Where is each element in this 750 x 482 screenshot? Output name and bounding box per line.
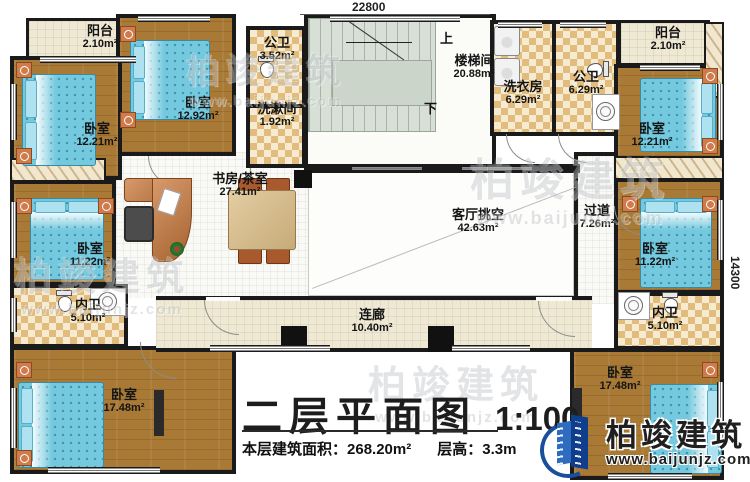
- window: [10, 298, 17, 332]
- nightstand: [120, 112, 136, 128]
- label-living-void: 客厅挑空42.63m²: [452, 208, 504, 234]
- desk-chair: [124, 206, 154, 242]
- window: [10, 84, 17, 140]
- label-bedroom-top-mid: 卧室12.92m²: [178, 96, 219, 122]
- window: [608, 473, 692, 480]
- sink-basin: [596, 102, 615, 121]
- window: [10, 202, 17, 258]
- tea-table: [228, 190, 296, 250]
- nightstand: [702, 362, 718, 378]
- stair-down-label: 下: [424, 98, 437, 117]
- title-underline: [242, 430, 498, 432]
- column-living-corner: [294, 170, 312, 188]
- label-bedroom-mid-left: 卧室11.22m²: [70, 242, 110, 268]
- window: [717, 200, 724, 260]
- label-bedroom-mid-right: 卧室11.22m²: [635, 242, 675, 268]
- window: [352, 166, 422, 171]
- company-website: www.baijunjz.com: [606, 452, 750, 468]
- wardrobe-right: [614, 156, 724, 180]
- window: [560, 21, 606, 28]
- stair-direction-line: [346, 42, 412, 43]
- nightstand: [702, 138, 718, 154]
- label-laundry: 洗衣房6.29m²: [503, 80, 542, 106]
- label-study-tea: 书房/茶室27.41m²: [212, 172, 268, 198]
- floor-height-label: 层高：: [437, 441, 482, 458]
- room-living-void: [308, 170, 574, 296]
- nightstand: [702, 196, 718, 212]
- label-bedroom-top-right: 卧室12.21m²: [632, 122, 673, 148]
- label-bedroom-bot-right: 卧室17.48m²: [600, 366, 641, 392]
- floor-height-value: 3.3m: [482, 441, 516, 458]
- label-corridor: 连廊10.40m²: [352, 308, 393, 334]
- dimension-top: 22800: [352, 0, 385, 14]
- sink-basin: [624, 296, 643, 315]
- label-stairwell: 楼梯间20.88m²: [454, 54, 495, 80]
- column-corridor-right: [428, 326, 454, 352]
- label-inner-bath-right: 内卫5.10m²: [648, 306, 683, 332]
- title-block: 二层平面图 1:100: [242, 384, 579, 442]
- plant: [170, 242, 184, 256]
- label-hallway: 过道7.26m²: [580, 204, 615, 230]
- nightstand: [98, 198, 114, 214]
- window: [210, 345, 330, 352]
- nightstand: [16, 62, 32, 78]
- window: [452, 345, 530, 352]
- page-title: 二层平面图: [242, 384, 477, 442]
- nightstand: [16, 362, 32, 378]
- label-bedroom-bot-left: 卧室17.48m²: [104, 388, 145, 414]
- company-logo: 柏竣建筑 www.baijunjz.com: [540, 414, 750, 474]
- nightstand: [622, 196, 638, 212]
- floor-plan-canvas: 上 下 阳: [0, 0, 750, 482]
- window: [498, 21, 542, 28]
- door-gap-corridor-left: [206, 297, 240, 301]
- window: [640, 64, 700, 71]
- nightstand: [16, 450, 32, 466]
- window: [462, 166, 532, 171]
- bed: [22, 74, 96, 166]
- nightstand: [16, 198, 32, 214]
- washing-machine: [494, 26, 520, 56]
- title-subtitle: 本层建筑面积：268.20m² 层高：3.3m: [242, 438, 516, 459]
- window: [10, 388, 17, 448]
- dimension-right: 14300: [728, 256, 742, 289]
- stair-landing: [332, 60, 432, 106]
- window: [138, 15, 210, 22]
- label-public-bath-small: 公卫3.52m²: [260, 36, 295, 62]
- door-arc: [558, 134, 587, 163]
- label-inner-bath-left: 内卫5.10m²: [71, 298, 106, 324]
- label-balcony-top-right: 阳台2.10m²: [651, 26, 686, 52]
- door-gap-corridor-right: [536, 297, 572, 301]
- label-bedroom-top-left: 卧室12.21m²: [77, 122, 118, 148]
- logo-tower-back: [557, 421, 572, 466]
- label-public-bath-large: 公卫6.29m²: [569, 70, 604, 96]
- window: [48, 467, 160, 474]
- window: [40, 56, 136, 63]
- company-logo-icon: [540, 414, 598, 474]
- window: [330, 15, 460, 22]
- nightstand: [702, 68, 718, 84]
- window: [717, 84, 724, 140]
- wall-living-top: [304, 164, 580, 173]
- floor-area-label: 本层建筑面积：: [242, 441, 347, 458]
- company-name: 柏竣建筑: [606, 420, 750, 453]
- logo-tower-front: [571, 415, 588, 470]
- dimension-top-line: [300, 14, 490, 15]
- label-washroom: 洗漱间1.92m²: [257, 102, 296, 128]
- stair-up-label: 上: [440, 28, 453, 47]
- nightstand: [16, 148, 32, 164]
- label-balcony-top-left: 阳台2.10m²: [83, 24, 118, 50]
- tv-console: [154, 390, 164, 436]
- nightstand: [120, 26, 136, 42]
- floor-area-value: 268.20m²: [347, 441, 411, 458]
- door-arc: [506, 134, 535, 163]
